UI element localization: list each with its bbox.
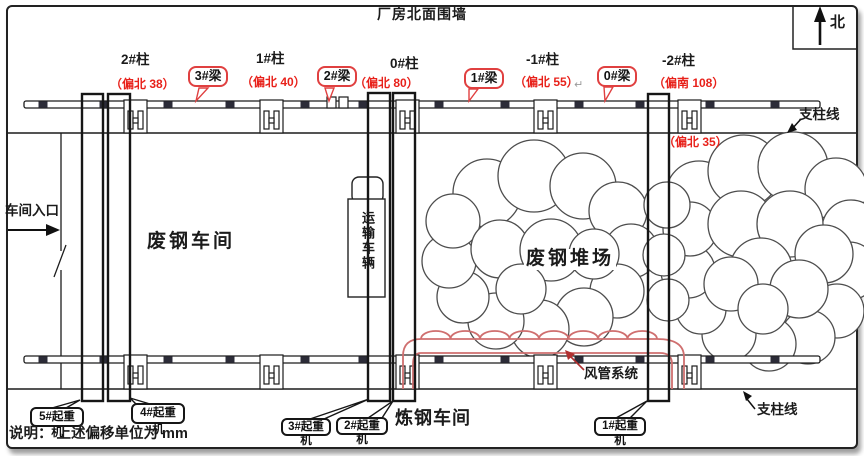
beam-callout-2: 2#梁: [317, 66, 357, 87]
beam-callout-3: 3#梁: [188, 66, 228, 87]
column-label-m2: -2#柱: [662, 54, 695, 69]
return-mark: ↵: [574, 78, 583, 91]
left-wall-break-line: [54, 133, 66, 389]
column-offset-m2: （偏南 108）: [653, 77, 724, 90]
column-label-1: 1#柱: [256, 52, 285, 67]
crane-column-5: [82, 94, 103, 401]
units-note: 说明： 上述偏移单位为 mm: [9, 427, 188, 443]
factory-layout-diagram: 厂房北面围墙 北 2#柱 1#柱 0#柱 -1#柱 -2#柱 （偏北 38） （…: [0, 0, 864, 456]
north-wall-title: 厂房北面围墙: [377, 7, 467, 22]
entrance-arrow-icon: [8, 224, 60, 236]
crane-callout-1: 1#起重机: [594, 417, 646, 436]
beam-callout-0: 0#梁: [597, 66, 637, 87]
column-offset-0: （偏北 80）: [354, 77, 419, 90]
entrance-label: 车间入口: [5, 204, 59, 219]
cloud-scrap-yard: [422, 132, 864, 371]
column-offset-1: （偏北 40）: [241, 76, 306, 89]
column-offset-m1: （偏北 55）: [514, 76, 579, 89]
column-label-2: 2#柱: [121, 53, 150, 68]
beam-callout-1: 1#梁: [464, 68, 504, 89]
support-line-label-bottom: 支柱线: [757, 403, 798, 418]
transport-vehicle-label: 运输车辆: [358, 211, 377, 271]
diagram-linework: [0, 0, 864, 456]
column-offset-2: （偏北 38）: [110, 78, 175, 91]
column-label-0: 0#柱: [390, 57, 419, 72]
north-label: 北: [830, 15, 845, 32]
north-arrow-icon: [814, 6, 826, 45]
support-line-offset: （偏北 35）: [663, 136, 728, 149]
column-label-m1: -1#柱: [526, 53, 559, 68]
scrap-yard-label: 废钢堆场: [524, 249, 616, 270]
crane-callout-3: 3#起重机: [281, 418, 331, 436]
crane-callout-4: 4#起重机: [131, 403, 185, 424]
steel-workshop-label: 炼钢车间: [395, 409, 471, 429]
support-line-label-top: 支柱线: [799, 108, 840, 123]
duct-system-label: 风管系统: [584, 367, 638, 382]
crane-callout-5: 5#起重机: [30, 407, 84, 427]
support-line-arrow-bottom: [743, 391, 755, 409]
north-box: [793, 7, 856, 49]
scrap-workshop-label: 废钢车间: [147, 232, 235, 253]
crane-callout-2: 2#起重机: [336, 417, 388, 435]
